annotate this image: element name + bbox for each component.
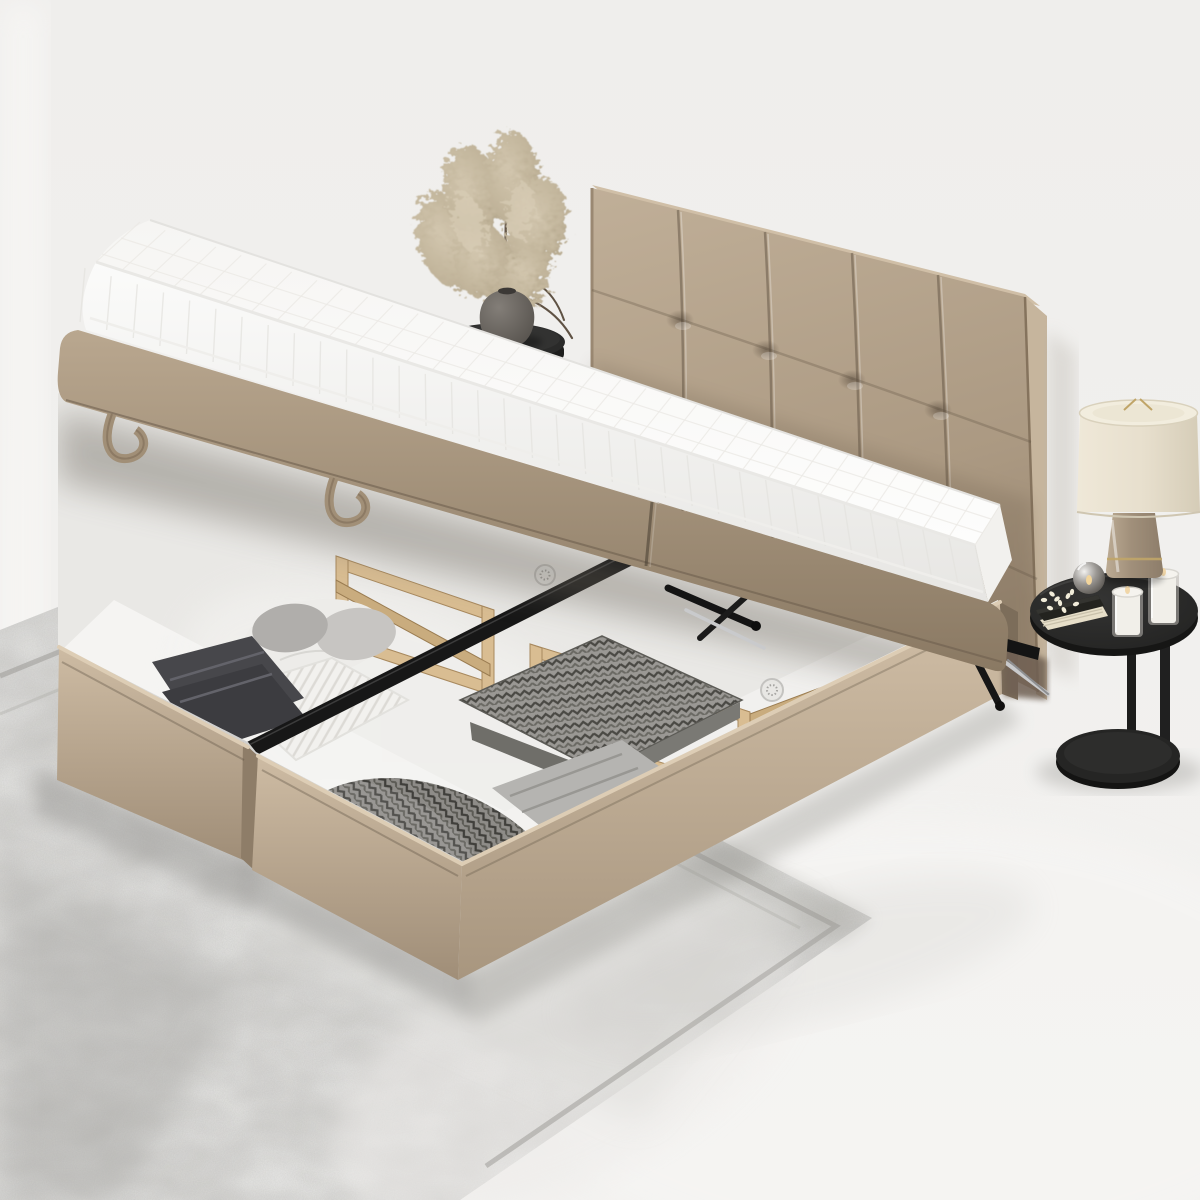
scene-canvas (0, 0, 1200, 1200)
lamp-shade (1077, 413, 1200, 512)
glass-candle-front (1112, 586, 1143, 637)
sphere-candle (1073, 562, 1105, 594)
vase-mouth (498, 288, 516, 295)
product-render (0, 0, 1200, 1200)
